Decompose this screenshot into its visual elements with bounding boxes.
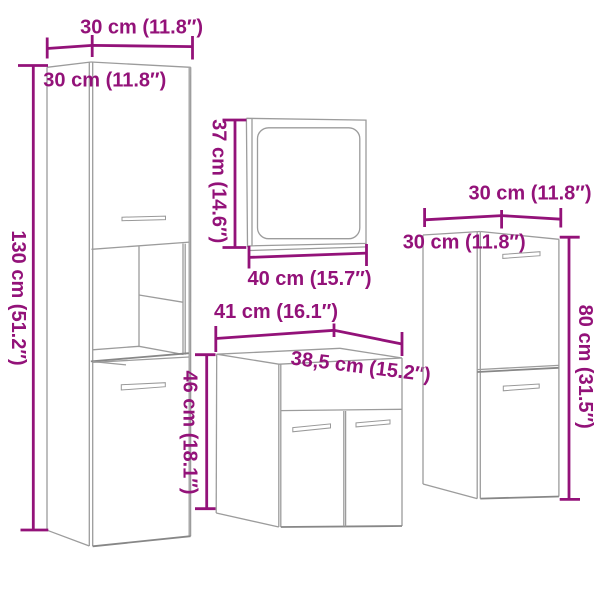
svg-text:80 cm (31.5″): 80 cm (31.5″) — [574, 305, 596, 429]
svg-text:37 cm (14.6″): 37 cm (14.6″) — [208, 119, 230, 243]
svg-text:30 cm (11.8″): 30 cm (11.8″) — [403, 231, 526, 253]
svg-text:30 cm (11.8″): 30 cm (11.8″) — [80, 17, 203, 39]
svg-text:40 cm (15.7″): 40 cm (15.7″) — [247, 268, 371, 290]
svg-text:30 cm (11.8″): 30 cm (11.8″) — [469, 182, 592, 204]
svg-text:30 cm (11.8″): 30 cm (11.8″) — [43, 70, 166, 92]
svg-text:46 cm (18.1″): 46 cm (18.1″) — [179, 370, 201, 494]
svg-text:41 cm (16.1″): 41 cm (16.1″) — [214, 301, 338, 323]
svg-text:130 cm (51.2″): 130 cm (51.2″) — [7, 230, 29, 365]
